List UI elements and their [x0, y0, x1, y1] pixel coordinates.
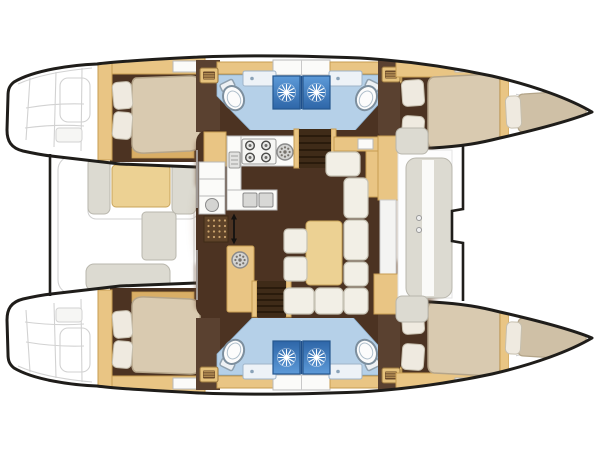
forward-cockpit	[396, 128, 452, 322]
sink-round-icon	[232, 252, 248, 268]
deck-fitting	[417, 216, 422, 221]
aft-cockpit	[58, 156, 198, 302]
salon-table	[306, 221, 342, 285]
settee-cushion	[344, 288, 368, 314]
cockpit-seat	[88, 158, 110, 214]
forward-seat	[396, 296, 428, 322]
settee-cushion	[284, 288, 314, 314]
settee-cushion	[326, 152, 360, 176]
floorplan-canvas	[0, 0, 600, 450]
sink-square-icon	[259, 193, 273, 207]
sink-round-icon	[206, 199, 219, 212]
sunpad-stripe	[422, 160, 434, 296]
stove-burner-icon	[246, 141, 255, 150]
cockpit-module	[142, 212, 176, 260]
forward-crossbeam	[452, 146, 463, 301]
sink-round-icon	[277, 144, 293, 160]
cockpit-table	[112, 165, 170, 207]
deck-fitting	[417, 228, 422, 233]
forward-window	[380, 200, 396, 274]
stove-burner-icon	[262, 153, 271, 162]
stove-burner-icon	[246, 153, 255, 162]
sideboard-appliance	[358, 139, 373, 149]
stool	[284, 229, 307, 253]
stool	[284, 257, 307, 281]
sink-square-icon	[243, 193, 257, 207]
settee-cushion	[344, 178, 368, 218]
catamaran-floorplan	[0, 0, 600, 450]
salon	[196, 129, 398, 318]
settee-cushion	[315, 288, 343, 314]
entry-floor-grate	[204, 216, 228, 242]
settee-cushion	[344, 220, 368, 260]
settee-cushion	[344, 262, 368, 286]
forward-seat	[396, 128, 428, 154]
stove-burner-icon	[262, 141, 271, 150]
nav-desk	[374, 274, 398, 314]
